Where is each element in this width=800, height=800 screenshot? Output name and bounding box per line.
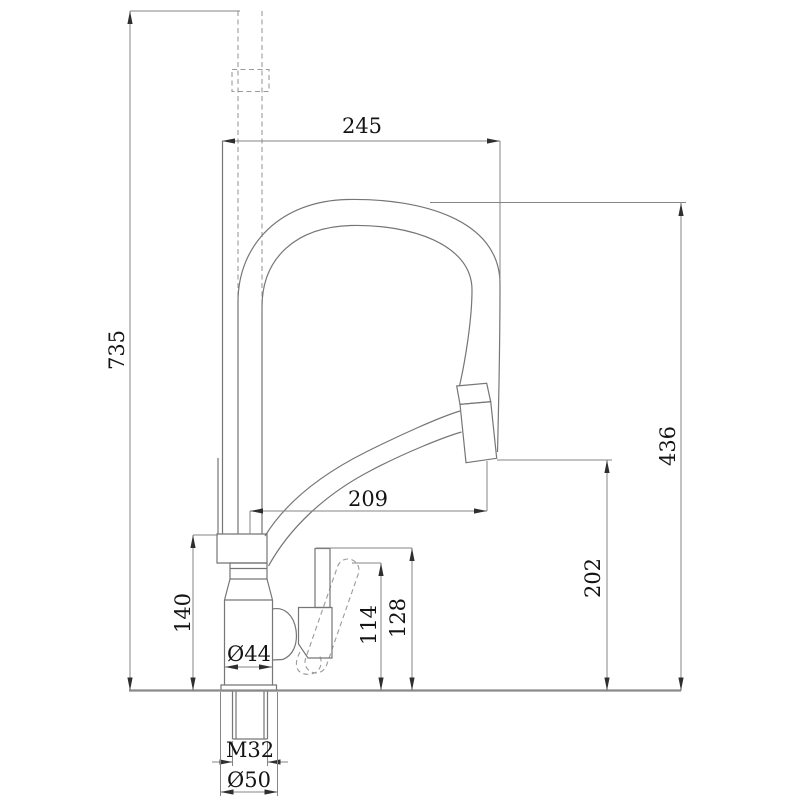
faucet-dimension-drawing: 735 245 436 202 <box>0 0 800 800</box>
dim-label-140: 140 <box>171 593 195 633</box>
dim-overall-height-735: 735 <box>105 11 240 691</box>
spray-head-body <box>460 402 497 463</box>
pulldown-hose-upper <box>265 411 460 536</box>
dim-label-114: 114 <box>357 605 381 645</box>
shank-outer <box>233 691 268 739</box>
dim-body-height-140: 140 <box>171 535 218 691</box>
dim-label-128: 128 <box>386 598 410 638</box>
dim-label-436: 436 <box>656 426 680 466</box>
dim-spout-top-reach-245: 245 <box>222 114 500 280</box>
dim-mounting-thread-m32: M32 <box>212 738 288 766</box>
dim-label-m32: M32 <box>226 738 274 762</box>
handle-column <box>315 549 330 608</box>
dim-lever-height-114: 114 <box>352 563 384 691</box>
gooseneck-inner-curve <box>262 225 472 386</box>
dim-label-dia44: Ø44 <box>227 642 271 666</box>
shank-inner <box>236 691 264 739</box>
valve-bulge <box>273 609 297 660</box>
dim-outlet-clearance-202: 202 <box>497 460 612 691</box>
body-neck-band <box>230 563 267 579</box>
dimension-annotations: 735 245 436 202 <box>105 11 686 796</box>
drawing-canvas: 735 245 436 202 <box>0 0 800 800</box>
dim-label-735: 735 <box>105 330 129 370</box>
hidden-lines <box>232 11 359 674</box>
dim-label-202: 202 <box>581 558 605 598</box>
valve-housing <box>299 608 333 659</box>
body-collar <box>217 534 267 563</box>
body-cone <box>225 579 273 600</box>
dim-label-dia50: Ø50 <box>227 768 271 792</box>
handle-ball-end-hidden <box>296 652 321 674</box>
dim-label-209: 209 <box>348 487 388 511</box>
dim-outlet-height-436: 436 <box>430 203 686 692</box>
spray-head-collar <box>457 383 491 404</box>
dim-body-diameter-44: Ø44 <box>225 642 272 670</box>
dim-label-245: 245 <box>342 114 382 138</box>
